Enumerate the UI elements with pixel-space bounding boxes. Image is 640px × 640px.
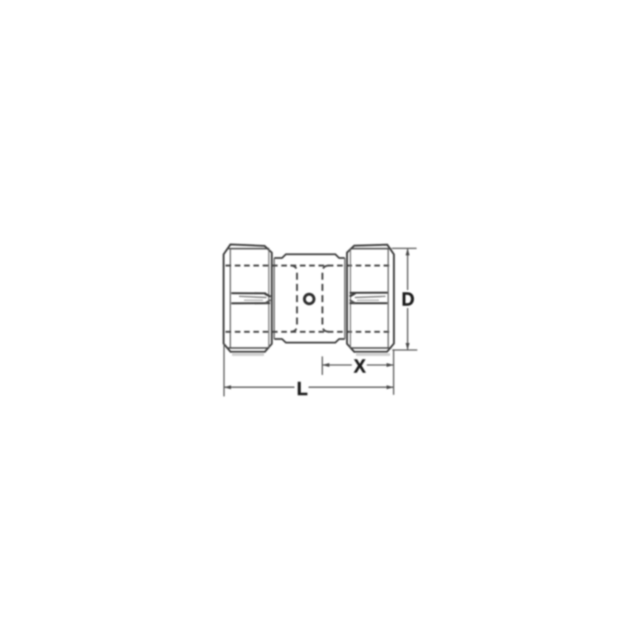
svg-text:L: L xyxy=(297,379,308,399)
svg-text:X: X xyxy=(354,356,366,376)
svg-text:D: D xyxy=(402,289,415,309)
